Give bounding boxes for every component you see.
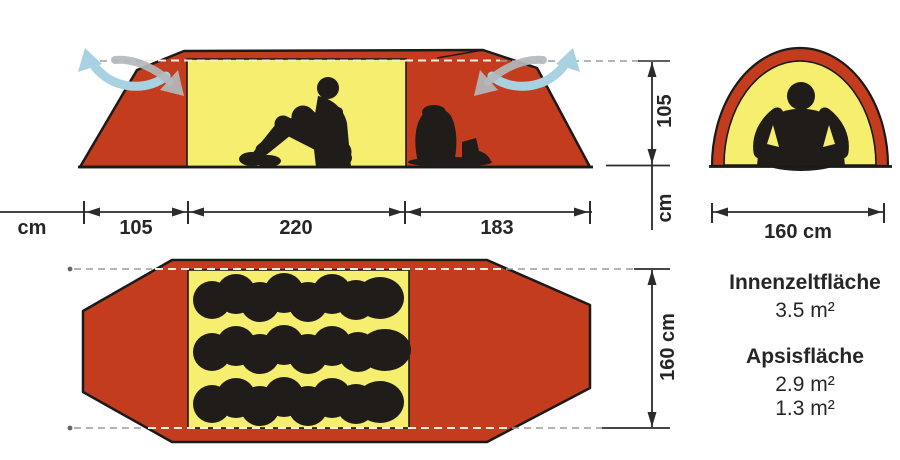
length-unit-label: cm [2, 217, 62, 239]
sleeping-bag-silhouettes [193, 273, 411, 426]
reference-dot [68, 426, 73, 431]
side-view [78, 48, 640, 168]
front-width-label: 160 cm [738, 221, 858, 243]
height-dimension-label: 105 [654, 81, 676, 141]
inner-area-title: Innenzeltfläche [695, 271, 900, 294]
reference-dot [68, 267, 73, 272]
dimension-label-apsis-left: 105 [96, 217, 176, 239]
apsis-area-value-1: 2.9 m² [695, 373, 900, 396]
tent-spec-diagram: cm 105 220 183 105 cm 160 cm 160 cm Inne… [0, 0, 900, 460]
inner-area-value: 3.5 m² [695, 299, 900, 322]
front-width-dimension [712, 203, 884, 223]
dimension-label-inner-length: 220 [256, 217, 336, 239]
apsis-area-title: Apsisfläche [695, 345, 900, 368]
dimension-label-apsis-right: 183 [457, 217, 537, 239]
height-unit-label: cm [654, 188, 676, 228]
floor-plan [68, 260, 634, 442]
front-view [709, 48, 892, 171]
apsis-area-value-2: 1.3 m² [695, 397, 900, 420]
floor-width-label: 160 cm [657, 302, 679, 392]
